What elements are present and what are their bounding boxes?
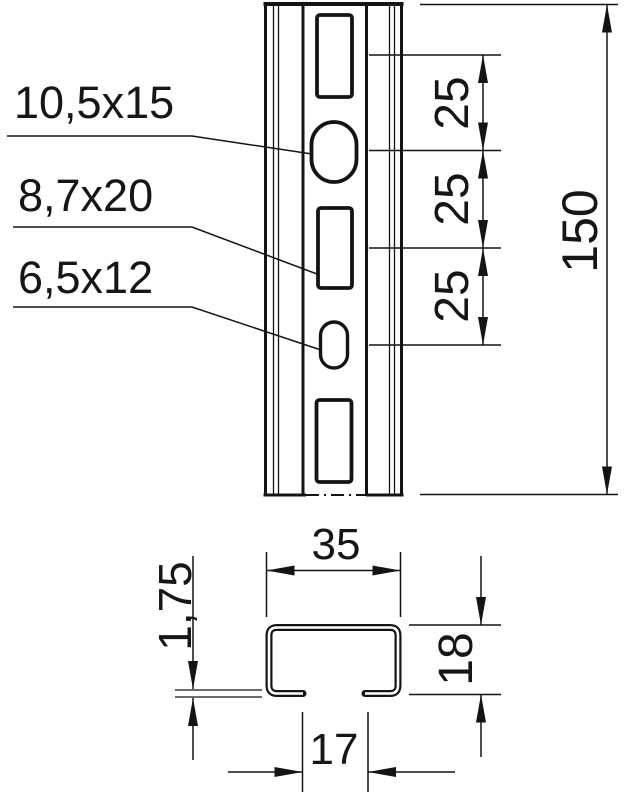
hole-size-label-10-5x15: 10,5x15	[14, 77, 174, 128]
hole-spacing-dim-3: 25	[426, 269, 479, 322]
arrow-down-icon	[188, 661, 198, 689]
arrow-up-icon	[476, 695, 486, 723]
thickness-dimension: 1,75	[149, 556, 262, 760]
opening-dimension: 17	[228, 712, 455, 792]
profile-rail-drawing: 10,5x15 8,7x20 6,5x12 25 25 25 150	[0, 0, 626, 794]
height-dimension: 18	[409, 556, 501, 757]
leader-line-6-5x12	[13, 307, 321, 350]
rail-front-view	[264, 3, 404, 495]
arrow-up-icon	[478, 248, 488, 276]
arrow-up-icon	[188, 698, 198, 726]
arrow-down-icon	[478, 123, 488, 151]
profile-thickness-dim: 1,75	[149, 561, 201, 651]
profile-outline-outer	[269, 628, 398, 694]
oblong-hole-10-5x15	[312, 122, 357, 182]
profile-height-dim: 18	[430, 632, 483, 685]
profile-opening-dim: 17	[310, 725, 359, 774]
arrow-up-icon	[602, 5, 612, 33]
arrow-left-icon	[267, 566, 295, 576]
spacing-dimensions: 25 25 25	[369, 55, 501, 345]
arrow-right-icon	[373, 566, 401, 576]
arrow-up-icon	[478, 151, 488, 179]
arrow-left-icon	[368, 767, 396, 777]
slot-hole-top	[317, 15, 352, 97]
technical-drawing-page: 10,5x15 8,7x20 6,5x12 25 25 25 150	[0, 0, 626, 794]
width-dimension: 35	[267, 520, 401, 617]
arrow-up-icon	[478, 55, 488, 83]
arrow-down-icon	[478, 317, 488, 345]
hole-size-label-8-7x20: 8,7x20	[18, 170, 153, 221]
oblong-hole-6-5x12	[321, 322, 348, 368]
slot-hole-8-7x20	[318, 208, 352, 288]
rail-length-dim: 150	[552, 189, 608, 272]
hole-spacing-dim-2: 25	[426, 172, 479, 225]
arrow-down-icon	[476, 597, 486, 625]
profile-outline-inner	[269, 628, 398, 694]
arrow-right-icon	[275, 767, 303, 777]
slot-hole-bottom	[317, 400, 352, 482]
hole-spacing-dim-1: 25	[426, 76, 479, 129]
arrow-down-icon	[602, 467, 612, 495]
profile-width-dim: 35	[312, 520, 361, 569]
arrow-down-icon	[478, 220, 488, 248]
hole-size-label-6-5x12: 6,5x12	[18, 252, 153, 303]
profile-section-view: 35 1,75 18	[149, 520, 501, 792]
